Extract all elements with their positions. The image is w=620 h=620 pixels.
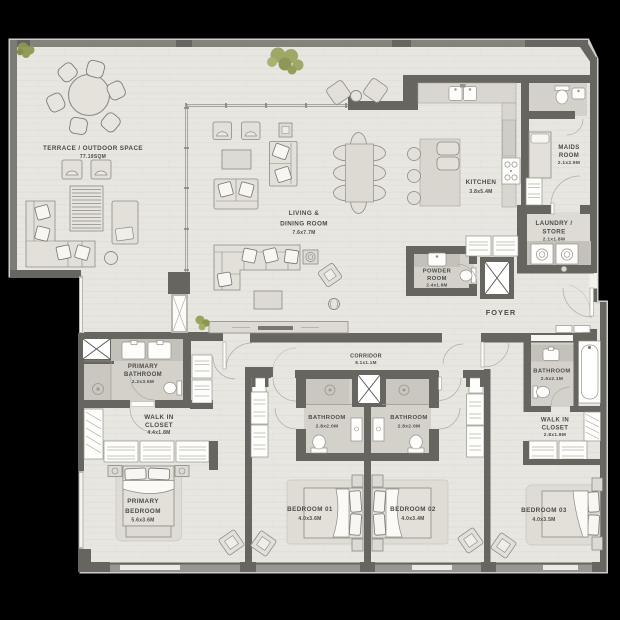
svg-text:KITCHEN: KITCHEN — [466, 179, 497, 186]
svg-text:2.1x2.9M: 2.1x2.9M — [558, 160, 580, 166]
svg-text:CLOSET: CLOSET — [542, 426, 569, 432]
svg-text:CLOSET: CLOSET — [145, 422, 173, 429]
svg-text:77.19SQM: 77.19SQM — [80, 154, 106, 160]
svg-text:BATHROOM: BATHROOM — [533, 369, 570, 375]
svg-text:WALK IN: WALK IN — [541, 418, 569, 424]
svg-text:LIVING &: LIVING & — [289, 210, 320, 217]
svg-text:2.6x2.1M: 2.6x2.1M — [541, 376, 563, 382]
svg-text:BATHROOM: BATHROOM — [124, 372, 162, 378]
svg-text:BEDROOM 02: BEDROOM 02 — [390, 506, 436, 513]
svg-text:2.4x1.6M: 2.4x1.6M — [426, 282, 447, 287]
svg-text:2.8x2.0M: 2.8x2.0M — [398, 424, 421, 430]
svg-text:STORE: STORE — [542, 229, 565, 236]
svg-text:PRIMARY: PRIMARY — [127, 498, 159, 505]
svg-text:2.8x2.0M: 2.8x2.0M — [316, 424, 339, 430]
svg-text:FOYER: FOYER — [486, 308, 516, 317]
svg-text:4.0x3.5M: 4.0x3.5M — [532, 517, 555, 523]
svg-text:2.1x1.8M: 2.1x1.8M — [543, 237, 565, 243]
svg-text:2.2x3.5M: 2.2x3.5M — [132, 379, 154, 385]
svg-text:3.8x5.4M: 3.8x5.4M — [469, 189, 492, 195]
svg-text:ROOM: ROOM — [427, 276, 447, 282]
svg-text:4.0x3.4M: 4.0x3.4M — [401, 516, 424, 522]
svg-text:PRIMARY: PRIMARY — [128, 364, 158, 370]
svg-text:LAUNDRY /: LAUNDRY / — [536, 220, 573, 227]
svg-text:BEDROOM: BEDROOM — [125, 508, 161, 515]
svg-text:4.4x1.8M: 4.4x1.8M — [147, 430, 170, 436]
svg-text:BEDROOM 03: BEDROOM 03 — [521, 507, 567, 514]
svg-text:8.1x1.1M: 8.1x1.1M — [355, 360, 377, 365]
svg-text:7.6x7.7M: 7.6x7.7M — [292, 230, 315, 236]
svg-text:BATHROOM: BATHROOM — [308, 415, 345, 421]
svg-text:5.6x3.6M: 5.6x3.6M — [131, 518, 154, 524]
svg-text:TERRACE / OUTDOOR SPACE: TERRACE / OUTDOOR SPACE — [43, 145, 143, 152]
svg-text:DINING ROOM: DINING ROOM — [280, 221, 328, 228]
svg-text:WALK IN: WALK IN — [144, 414, 173, 421]
svg-text:MAIDS: MAIDS — [558, 145, 579, 151]
svg-text:POWDER: POWDER — [423, 269, 452, 275]
svg-text:BEDROOM 01: BEDROOM 01 — [287, 506, 333, 513]
svg-text:2.8x1.8M: 2.8x1.8M — [544, 432, 566, 438]
svg-text:ROOM: ROOM — [559, 153, 579, 159]
svg-text:CORRIDOR: CORRIDOR — [350, 354, 382, 360]
svg-text:BATHROOM: BATHROOM — [390, 415, 427, 421]
svg-text:4.0x3.6M: 4.0x3.6M — [298, 516, 321, 522]
